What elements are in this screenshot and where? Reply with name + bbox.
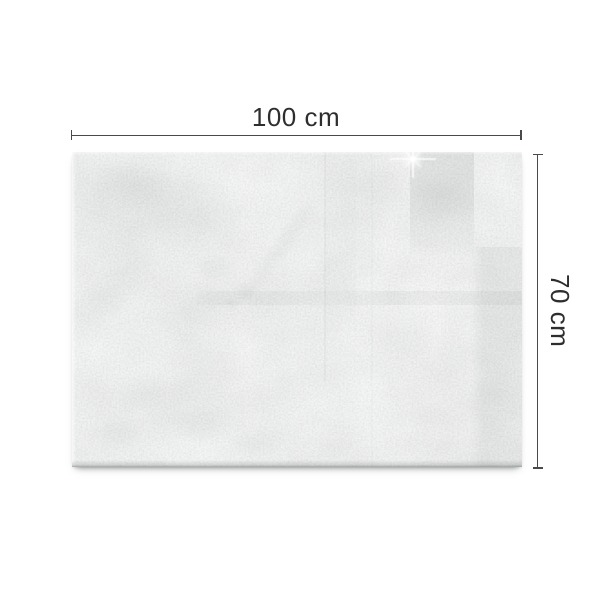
concrete-board-image — [72, 152, 522, 467]
height-dimension-top-tick — [533, 154, 543, 156]
height-dimension-line — [537, 154, 538, 468]
concrete-texture-graphic — [72, 152, 522, 467]
height-dimension-bottom-tick — [533, 467, 543, 469]
width-dimension-line — [71, 135, 521, 136]
width-dimension-left-tick — [71, 130, 73, 140]
product-dimension-diagram: 100 cm 70 cm — [0, 0, 600, 600]
height-dimension-label: 70 cm — [545, 154, 575, 468]
width-dimension-label: 100 cm — [71, 104, 521, 131]
width-dimension-right-tick — [520, 130, 522, 140]
